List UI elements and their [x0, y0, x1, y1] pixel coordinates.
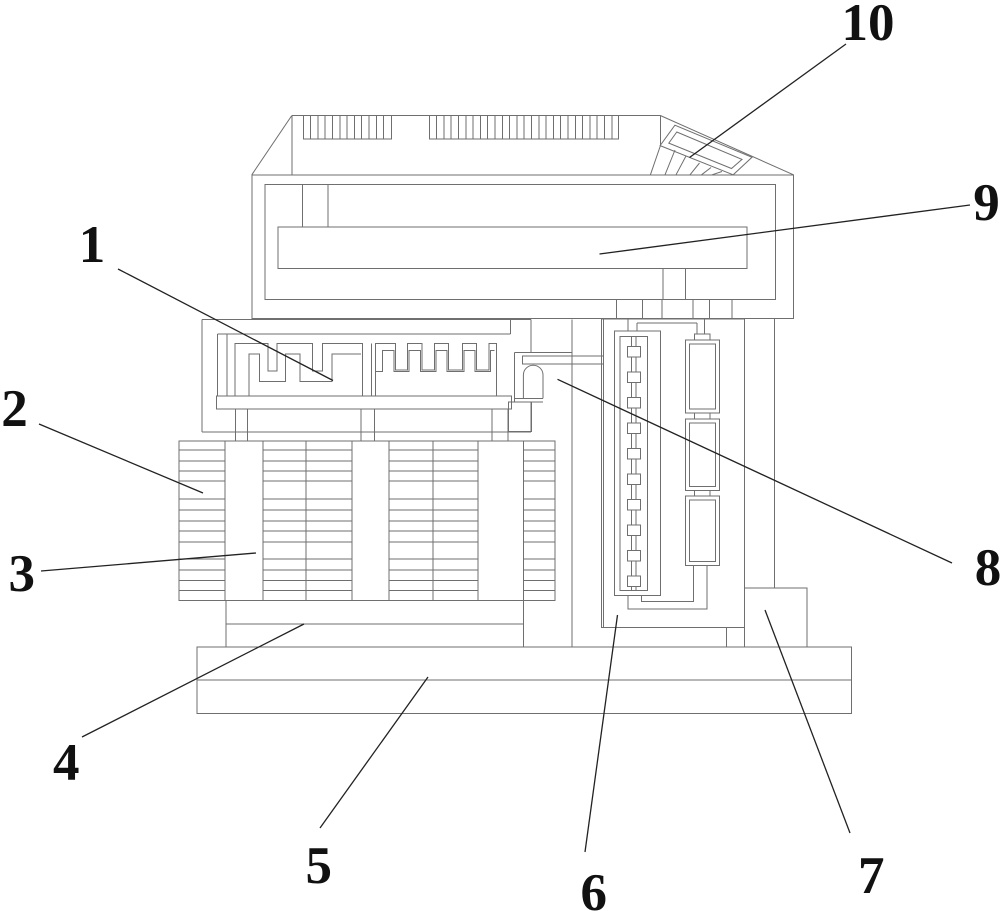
- svg-text:1: 1: [79, 216, 106, 274]
- svg-text:3: 3: [9, 545, 36, 603]
- svg-text:2: 2: [1, 380, 28, 438]
- svg-text:8: 8: [975, 539, 1000, 597]
- svg-text:6: 6: [581, 864, 608, 911]
- svg-text:5: 5: [306, 837, 333, 895]
- svg-text:4: 4: [53, 734, 80, 792]
- svg-text:7: 7: [858, 847, 885, 905]
- svg-text:10: 10: [842, 0, 895, 52]
- svg-text:9: 9: [973, 174, 1000, 232]
